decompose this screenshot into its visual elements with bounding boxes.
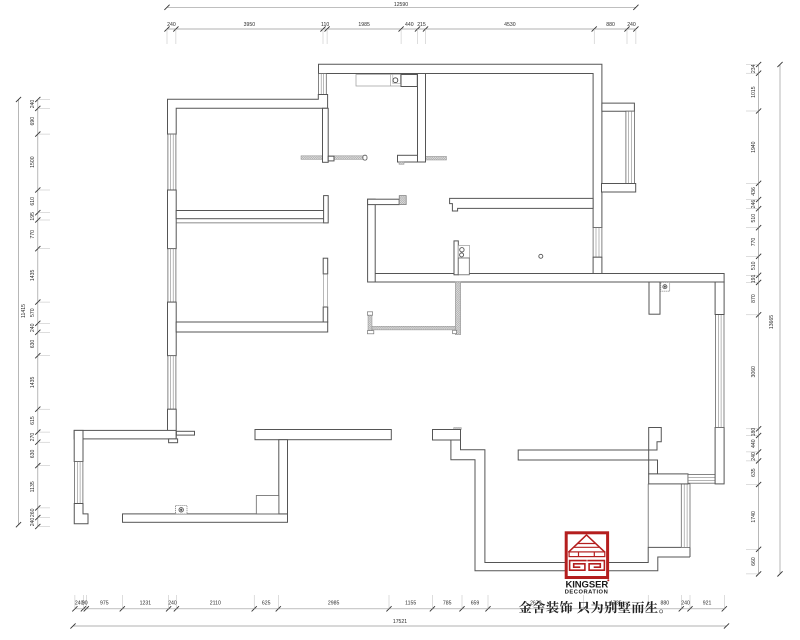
svg-text:240: 240	[30, 100, 36, 109]
svg-text:246: 246	[751, 200, 757, 209]
svg-text:630: 630	[30, 449, 36, 458]
svg-text:610: 610	[30, 197, 36, 206]
svg-text:3060: 3060	[751, 366, 757, 378]
svg-text:11415: 11415	[21, 304, 27, 318]
svg-text:1231: 1231	[140, 601, 152, 607]
svg-text:440: 440	[751, 439, 757, 448]
svg-text:2985: 2985	[328, 601, 340, 607]
svg-text:260: 260	[30, 508, 36, 517]
svg-text:1435: 1435	[30, 270, 36, 282]
svg-text:240: 240	[30, 518, 36, 527]
svg-text:625: 625	[262, 601, 271, 607]
svg-text:770: 770	[30, 230, 36, 239]
svg-text:240: 240	[627, 22, 636, 28]
svg-text:1985: 1985	[358, 22, 370, 28]
svg-text:785: 785	[443, 601, 452, 607]
svg-text:240: 240	[168, 601, 177, 607]
svg-text:DECORATION: DECORATION	[565, 589, 609, 595]
svg-text:635: 635	[751, 468, 757, 477]
svg-text:440: 440	[405, 22, 414, 28]
svg-text:4530: 4530	[504, 22, 516, 28]
svg-text:1015: 1015	[751, 86, 757, 98]
svg-text:570: 570	[30, 308, 36, 317]
svg-text:240: 240	[681, 601, 690, 607]
svg-text:180: 180	[751, 428, 757, 437]
svg-text:880: 880	[606, 22, 615, 28]
svg-text:240: 240	[751, 452, 757, 461]
svg-text:660: 660	[751, 557, 757, 566]
svg-text:2670: 2670	[530, 601, 542, 607]
svg-text:690: 690	[30, 117, 36, 126]
svg-text:110: 110	[321, 22, 329, 28]
svg-text:630: 630	[30, 340, 36, 349]
svg-text:770: 770	[751, 238, 757, 247]
svg-text:1435: 1435	[30, 377, 36, 389]
svg-text:12590: 12590	[394, 2, 408, 8]
svg-text:975: 975	[100, 601, 109, 607]
svg-text:1500: 1500	[30, 156, 36, 168]
svg-text:2110: 2110	[210, 601, 221, 607]
svg-text:659: 659	[471, 601, 480, 607]
svg-text:13665: 13665	[769, 315, 775, 329]
svg-text:240: 240	[30, 323, 36, 332]
svg-text:1155: 1155	[405, 601, 416, 607]
svg-text:90: 90	[82, 601, 88, 607]
svg-text:615: 615	[30, 416, 36, 425]
svg-text:436: 436	[751, 187, 757, 196]
svg-text:240: 240	[167, 22, 176, 28]
svg-text:17521: 17521	[393, 619, 407, 625]
svg-text:234: 234	[751, 64, 757, 73]
svg-text:510: 510	[751, 214, 757, 223]
svg-text:1740: 1740	[751, 511, 757, 523]
svg-text:1940: 1940	[751, 141, 757, 153]
svg-text:880: 880	[661, 601, 670, 607]
svg-text:1135: 1135	[30, 481, 36, 492]
svg-text:191: 191	[751, 274, 757, 283]
svg-text:510: 510	[751, 261, 757, 270]
svg-text:195: 195	[30, 212, 36, 221]
svg-text:921: 921	[703, 601, 712, 607]
svg-text:215: 215	[417, 22, 426, 28]
svg-text:870: 870	[751, 294, 757, 303]
svg-text:3950: 3950	[244, 22, 256, 28]
svg-text:270: 270	[30, 433, 36, 442]
